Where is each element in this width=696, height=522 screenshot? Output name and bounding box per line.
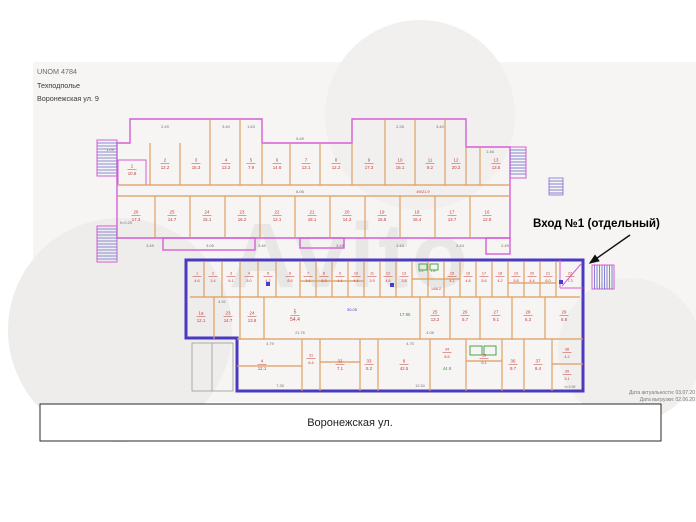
- room-area: 5.8: [513, 279, 518, 283]
- room-area: 3.8: [401, 279, 406, 283]
- room-area: 3.9: [369, 279, 374, 283]
- room-label: 2.2: [419, 269, 424, 273]
- room-area: 15.3: [192, 165, 201, 170]
- room-number: 18: [415, 210, 420, 215]
- room-area: 16.4: [413, 217, 422, 222]
- room-area: 4.6: [194, 279, 199, 283]
- room-number: 18: [498, 272, 502, 276]
- floorplan-drawing: Avito UNOM 4784 Техподполье Воронежская …: [0, 0, 696, 522]
- room-number: 7: [307, 272, 309, 276]
- room-area: 6.1: [481, 361, 486, 365]
- room-area: 4.2: [497, 279, 502, 283]
- footnote: Дата актуальности: 03.07.20 Дата выгрузк…: [629, 390, 695, 403]
- room-number: 3: [230, 272, 232, 276]
- dimension-label: 2.28: [396, 124, 405, 129]
- room-number: 10: [398, 158, 403, 163]
- dimension-label: 21.76: [295, 331, 305, 335]
- room-number: 5: [294, 310, 297, 316]
- dimension-label: h=0.25: [120, 221, 132, 225]
- room-area: 13.5: [492, 165, 501, 170]
- dimension-label: 4.75: [406, 342, 413, 346]
- room-area: 5.2: [366, 366, 373, 371]
- room-area: 8.6: [287, 279, 292, 283]
- dimension-label: 3.05: [206, 243, 215, 248]
- room-number: 27: [494, 310, 499, 315]
- dimension-label: 1.63: [247, 124, 256, 129]
- room-number: 22: [568, 272, 572, 276]
- room-number: 28: [526, 310, 531, 315]
- room-area: 4.4: [353, 279, 358, 283]
- room-area: 10.8: [128, 171, 137, 176]
- room-number: 25: [433, 310, 438, 315]
- room-area: 6.0: [545, 279, 550, 283]
- room-label: 17.95: [400, 312, 412, 317]
- room-area: 4.1: [449, 279, 454, 283]
- room-number: 22: [275, 210, 280, 215]
- room-area: 6.1: [228, 279, 233, 283]
- dimension-label: 7.35: [276, 384, 283, 388]
- dimension-label: 6.06: [296, 189, 305, 194]
- room-area: 14.3: [343, 217, 352, 222]
- room-area: 5.3: [321, 279, 326, 283]
- room-area: 15.1: [203, 217, 212, 222]
- floor-name: Техподполье: [37, 81, 80, 90]
- room-label: 14/6.2: [431, 287, 441, 291]
- room-area: 14.6: [273, 165, 282, 170]
- room-area: 14.7: [224, 318, 233, 323]
- dimension-label: h=2.95: [565, 385, 576, 389]
- room-area: 16.2: [238, 217, 247, 222]
- room-area: 4.8: [465, 279, 470, 283]
- dimension-label: 2.49: [501, 243, 510, 248]
- watermark-blob: [325, 20, 515, 210]
- room-label: 49/21.9: [416, 189, 430, 194]
- room-number: 12: [386, 272, 390, 276]
- room-number: 4: [248, 272, 250, 276]
- room-area: 42.5: [400, 366, 409, 371]
- room-area: 12.1: [258, 366, 267, 371]
- room-area: 17.3: [132, 217, 141, 222]
- room-number: 21: [546, 272, 550, 276]
- room-area: 9.1: [493, 317, 500, 322]
- room-number: 19: [380, 210, 385, 215]
- room-area: 4.6: [385, 279, 390, 283]
- room-number: 37: [536, 359, 541, 364]
- room-area: 12.2: [161, 165, 170, 170]
- room-number: 20: [345, 210, 350, 215]
- dimension-label: 2.49: [161, 124, 170, 129]
- room-number: 24: [250, 311, 255, 316]
- room-number: 15: [450, 272, 454, 276]
- room-area: 12.9: [483, 217, 492, 222]
- room-number: 17: [482, 272, 486, 276]
- room-area: 12.1: [273, 217, 282, 222]
- room-area: 17.3: [365, 165, 374, 170]
- room-number: 29: [562, 310, 567, 315]
- room-area: 13.7: [448, 217, 457, 222]
- dimension-label: 1.46: [486, 149, 495, 154]
- room-number: 13: [494, 158, 499, 163]
- room-area: 3.1: [564, 377, 569, 381]
- room-label: 44.9: [443, 366, 452, 371]
- room-area: 4.4: [529, 279, 534, 283]
- dimension-label: 4.92: [218, 300, 225, 304]
- room-area: 4.1: [337, 279, 342, 283]
- room-area: 15.8: [378, 217, 387, 222]
- room-label: 1.8: [431, 269, 436, 273]
- room-area: 7.1: [337, 366, 344, 371]
- address-line: Воронежская ул. 9: [37, 94, 99, 103]
- room-area: 8.8: [561, 317, 568, 322]
- room-number: 19: [514, 272, 518, 276]
- room-number: 32: [338, 359, 343, 364]
- floorplan-page: Avito UNOM 4784 Техподполье Воронежская …: [0, 0, 696, 522]
- room-number: 21: [310, 210, 315, 215]
- street-strip: Воронежская ул.: [40, 404, 661, 441]
- room-number: 16: [466, 272, 470, 276]
- room-area: 3.1: [305, 279, 310, 283]
- dimension-label: 3.43: [396, 243, 405, 248]
- dimension-label: 3.40: [436, 124, 445, 129]
- room-area: 20.2: [452, 165, 461, 170]
- room-area: 9.7: [510, 366, 517, 371]
- room-number: 9: [339, 272, 341, 276]
- room-number: 17: [450, 210, 455, 215]
- room-area: 13.2: [431, 317, 440, 322]
- room-area: 13.1: [302, 165, 311, 170]
- dimension-label: 3.49: [146, 243, 155, 248]
- room-number: 23: [240, 210, 245, 215]
- room-area: 15.1: [396, 165, 405, 170]
- room-number: 24: [205, 210, 210, 215]
- room-area: 4.2: [265, 279, 270, 283]
- entrance-label: Вход №1 (отдельный): [533, 217, 660, 230]
- room-area: 12.1: [197, 318, 206, 323]
- room-area: 8.6: [444, 355, 449, 359]
- room-number: 39: [565, 370, 569, 374]
- room-area: 54.4: [290, 317, 300, 323]
- footnote-export: Дата выгрузки: 02.06.20: [640, 397, 695, 403]
- room-area: 5.0: [246, 279, 251, 283]
- room-number: 36: [511, 359, 516, 364]
- room-area: 18.1: [308, 217, 317, 222]
- room-area: 12.2: [332, 165, 341, 170]
- room-number: 8: [323, 272, 325, 276]
- room-number: 11: [428, 158, 433, 163]
- dimension-label: 1.09: [106, 147, 115, 152]
- room-number: 26: [134, 210, 139, 215]
- room-number: 12: [454, 158, 459, 163]
- room-area: 5.7: [462, 317, 469, 322]
- dimension-label: 3.40: [258, 243, 267, 248]
- room-number: 23: [226, 311, 231, 316]
- dimension-label: 4.08: [426, 331, 433, 335]
- street-label: Воронежская ул.: [307, 417, 393, 429]
- room-number: 6: [289, 272, 291, 276]
- footnote-actuality: Дата актуальности: 03.07.20: [629, 390, 695, 396]
- room-area: 6.4: [308, 361, 313, 365]
- room-label: 30.05: [347, 307, 358, 312]
- room-number: 10: [354, 272, 358, 276]
- room-number: 38: [565, 348, 569, 352]
- room-area: 14.7: [168, 217, 177, 222]
- room-number: 35: [482, 354, 486, 358]
- dimension-label: 12.34: [415, 384, 425, 388]
- room-area: 8.2: [427, 165, 434, 170]
- room-area: 8.4: [535, 366, 542, 371]
- dimension-label: 2.44: [456, 243, 465, 248]
- room-number: 13: [402, 272, 406, 276]
- room-area: 7.9: [248, 165, 255, 170]
- room-area: 13.8: [248, 318, 257, 323]
- room-area: 13.2: [222, 165, 231, 170]
- building-id: UNOM 4784: [37, 67, 77, 76]
- room-area: 6.3: [525, 317, 532, 322]
- room-number: 2: [212, 272, 214, 276]
- room-number: 26: [463, 310, 468, 315]
- room-number: 31: [309, 354, 313, 358]
- room-area: 5.6: [481, 279, 486, 283]
- room-number: 34: [445, 348, 449, 352]
- utility-marker: [559, 280, 563, 284]
- room-number: 25: [170, 210, 175, 215]
- room-number: 16: [485, 210, 490, 215]
- room-number: 5: [267, 272, 269, 276]
- room-number: 20: [530, 272, 534, 276]
- room-number: 1: [196, 272, 198, 276]
- room-number: 11: [370, 272, 374, 276]
- dimension-label: 4.79: [266, 342, 273, 346]
- room-number: 33: [367, 359, 372, 364]
- room-area: 3.4: [210, 279, 215, 283]
- utility-marker: [390, 283, 394, 287]
- room-number: 1а: [199, 311, 204, 316]
- dimension-label: 5.49: [296, 136, 305, 141]
- room-area: 7.3: [567, 279, 572, 283]
- dimension-label: 3.40: [222, 124, 231, 129]
- room-area: 4.2: [564, 355, 569, 359]
- dimension-label: 3.49: [336, 243, 345, 248]
